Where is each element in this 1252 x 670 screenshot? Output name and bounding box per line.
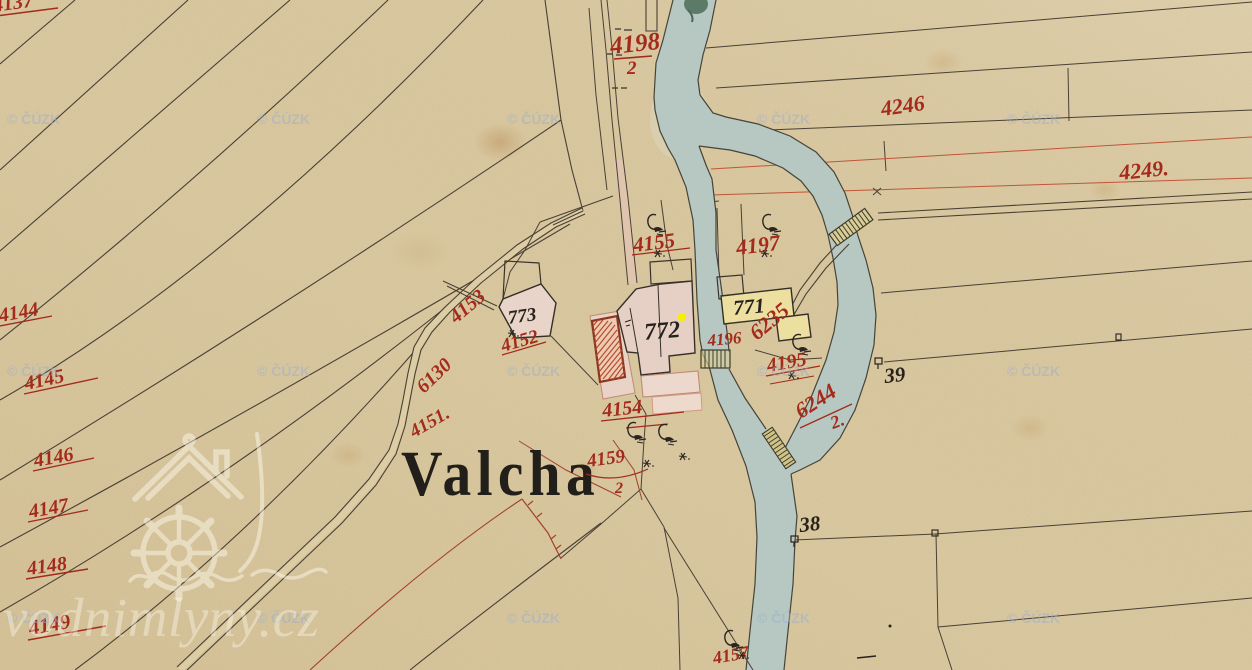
svg-text:© ČÚZK: © ČÚZK — [507, 110, 560, 127]
svg-text:© ČÚZK: © ČÚZK — [1007, 609, 1060, 626]
svg-text:© ČÚZK: © ČÚZK — [7, 362, 60, 379]
svg-text:© ČÚZK: © ČÚZK — [257, 110, 310, 127]
svg-text:© ČÚZK: © ČÚZK — [1007, 362, 1060, 379]
svg-text:vodnimlyny.cz: vodnimlyny.cz — [3, 587, 320, 648]
svg-text:© ČÚZK: © ČÚZK — [1007, 110, 1060, 127]
svg-text:© ČÚZK: © ČÚZK — [757, 362, 810, 379]
svg-text:39: 39 — [882, 362, 907, 388]
svg-text:© ČÚZK: © ČÚZK — [757, 110, 810, 127]
svg-text:2: 2 — [626, 58, 637, 79]
svg-text:© ČÚZK: © ČÚZK — [257, 362, 310, 379]
svg-text:© ČÚZK: © ČÚZK — [507, 362, 560, 379]
svg-text:© ČÚZK: © ČÚZK — [7, 110, 60, 127]
svg-text:2: 2 — [614, 480, 623, 497]
svg-text:4198: 4198 — [608, 28, 662, 60]
svg-text:4249.: 4249. — [1117, 155, 1170, 185]
svg-text:© ČÚZK: © ČÚZK — [757, 609, 810, 626]
svg-text:4196: 4196 — [706, 328, 743, 350]
svg-text:772: 772 — [643, 317, 681, 346]
svg-text:© ČÚZK: © ČÚZK — [507, 609, 560, 626]
svg-text:38: 38 — [797, 511, 822, 537]
svg-text:773: 773 — [507, 304, 538, 329]
svg-text:Valcha: Valcha — [401, 438, 600, 510]
